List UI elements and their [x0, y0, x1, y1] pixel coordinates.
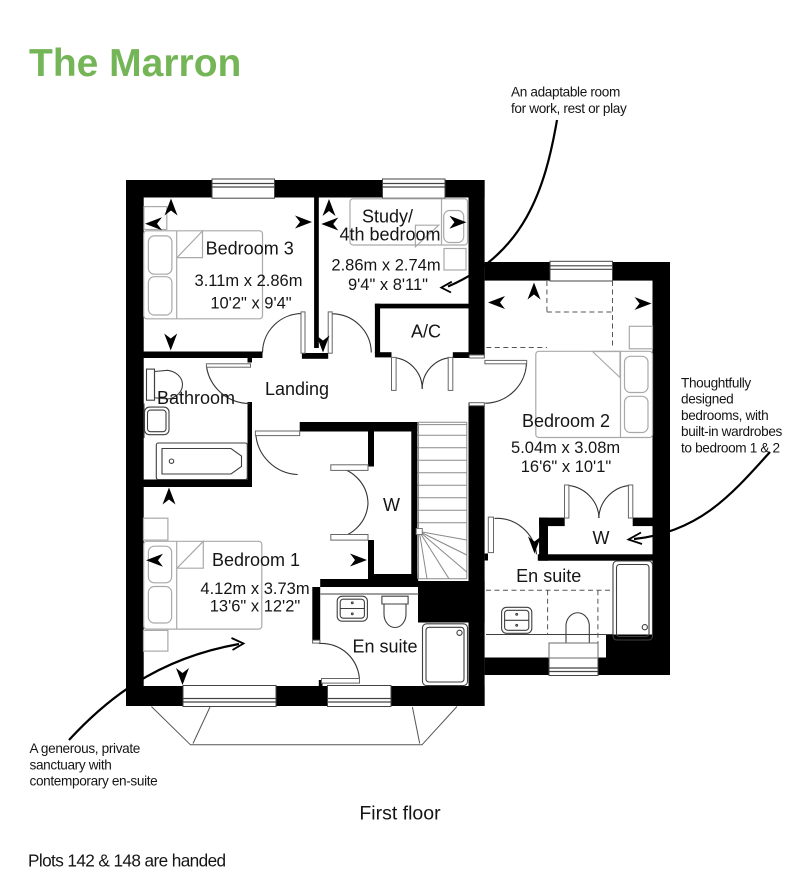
svg-text:bedrooms, with: bedrooms, with [681, 408, 768, 423]
svg-text:An adaptable room: An adaptable room [511, 85, 620, 100]
svg-text:First floor: First floor [359, 803, 441, 825]
svg-text:En suite: En suite [352, 637, 417, 657]
svg-text:designed: designed [681, 392, 733, 407]
svg-text:Bathroom: Bathroom [157, 388, 235, 408]
svg-text:2.86m x 2.74m: 2.86m x 2.74m [331, 257, 440, 275]
svg-text:for work, rest or play: for work, rest or play [511, 101, 627, 116]
svg-text:4.12m x 3.73m: 4.12m x 3.73m [200, 580, 309, 598]
svg-text:3.11m x 2.86m: 3.11m x 2.86m [195, 272, 303, 290]
svg-text:Bedroom 3: Bedroom 3 [206, 239, 294, 259]
svg-text:9'4" x 8'11": 9'4" x 8'11" [348, 276, 428, 294]
svg-text:A generous, private: A generous, private [30, 741, 140, 756]
svg-text:contemporary en-suite: contemporary en-suite [30, 774, 158, 789]
svg-text:4th bedroom: 4th bedroom [339, 225, 440, 245]
svg-text:Bedroom 1: Bedroom 1 [212, 550, 300, 570]
svg-text:Thoughtfully: Thoughtfully [681, 376, 751, 391]
svg-text:16'6" x 10'1": 16'6" x 10'1" [521, 458, 612, 476]
svg-text:13'6" x 12'2": 13'6" x 12'2" [210, 598, 301, 616]
svg-text:A/C: A/C [411, 322, 441, 342]
svg-text:sanctuary with: sanctuary with [30, 757, 112, 772]
svg-text:5.04m x 3.08m: 5.04m x 3.08m [511, 439, 620, 457]
svg-text:Bedroom 2: Bedroom 2 [522, 411, 610, 431]
svg-text:10'2" x 9'4": 10'2" x 9'4" [210, 295, 291, 313]
svg-text:Study/: Study/ [362, 206, 413, 226]
svg-text:En suite: En suite [516, 566, 581, 586]
svg-text:built-in wardrobes: built-in wardrobes [681, 424, 783, 439]
svg-text:Landing: Landing [265, 379, 329, 399]
svg-text:W: W [593, 528, 610, 548]
svg-text:W: W [383, 495, 400, 515]
svg-text:to bedroom 1 & 2: to bedroom 1 & 2 [681, 440, 780, 455]
svg-text:Plots 142 & 148 are handed: Plots 142 & 148 are handed [28, 851, 226, 871]
